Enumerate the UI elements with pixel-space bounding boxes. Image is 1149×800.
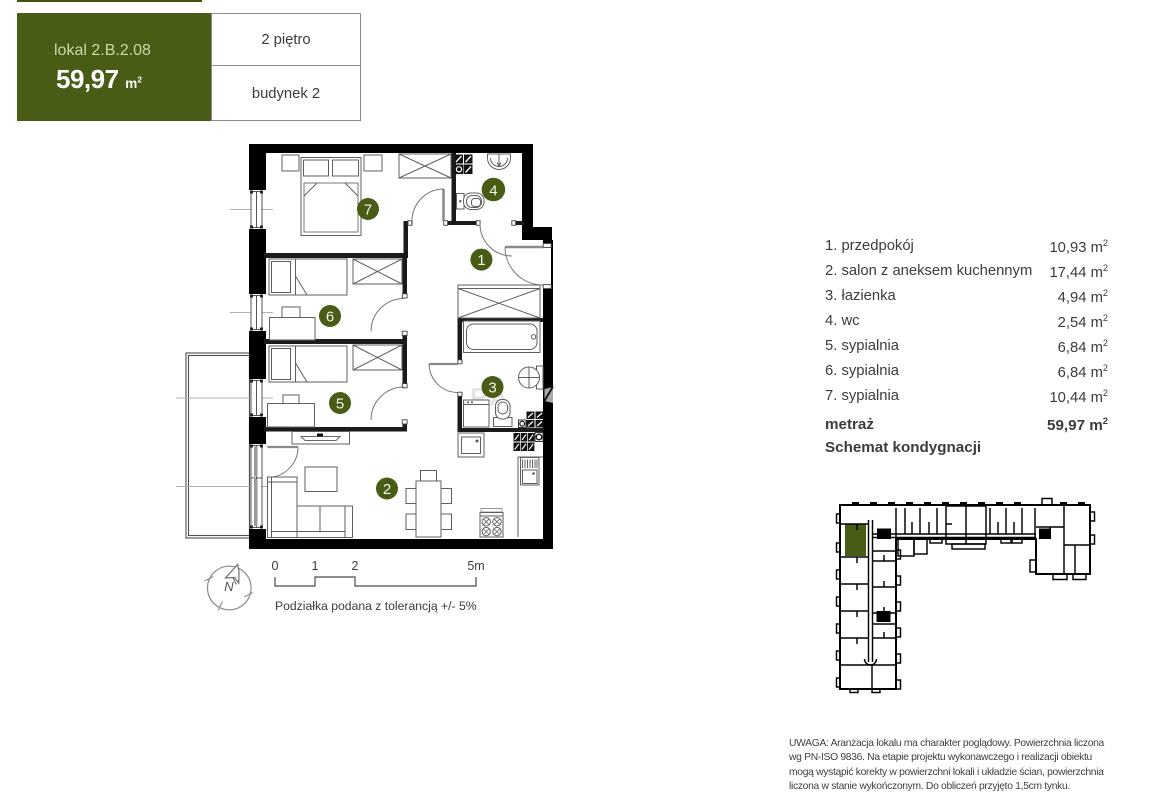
svg-text:4: 4 bbox=[489, 183, 497, 200]
svg-text:N: N bbox=[224, 579, 234, 594]
svg-text:3: 3 bbox=[488, 380, 496, 397]
svg-text:6: 6 bbox=[326, 309, 334, 326]
svg-text:5: 5 bbox=[336, 396, 344, 413]
svg-text:1: 1 bbox=[477, 252, 485, 269]
svg-text:2: 2 bbox=[383, 481, 391, 498]
svg-text:7: 7 bbox=[364, 202, 372, 219]
